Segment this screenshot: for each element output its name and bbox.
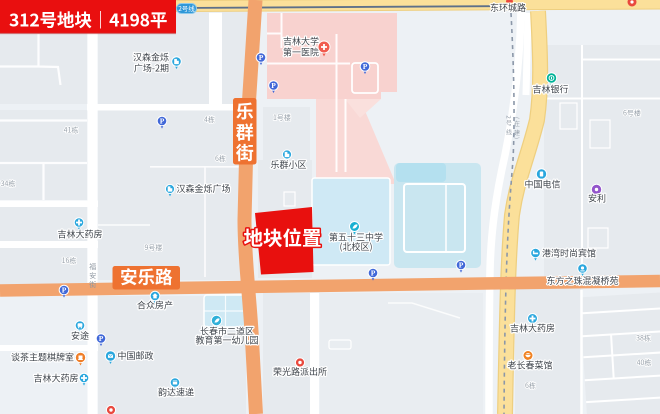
svg-text:地块位置: 地块位置 (243, 222, 321, 251)
svg-text:312号地块｜4198平: 312号地块｜4198平 (9, 8, 167, 33)
svg-text:1号楼: 1号楼 (273, 113, 291, 123)
svg-text:38栋: 38栋 (636, 334, 651, 344)
svg-text:2号线: 2号线 (178, 3, 195, 13)
svg-text:P: P (459, 260, 464, 271)
svg-text:东环城路: 东环城路 (490, 1, 526, 14)
svg-text:6号楼: 6号楼 (623, 109, 641, 119)
svg-text:P: P (363, 61, 368, 72)
svg-text:中国电信: 中国电信 (524, 178, 560, 191)
svg-text:港湾时尚宾馆: 港湾时尚宾馆 (542, 247, 596, 260)
svg-text:教育第一幼儿园: 教育第一幼儿园 (195, 334, 258, 347)
svg-text:东方之珠混凝桥苑: 东方之珠混凝桥苑 (546, 274, 618, 287)
svg-text:安途: 安途 (71, 329, 89, 342)
svg-text:安利: 安利 (588, 192, 606, 205)
svg-text:安乐路: 安乐路 (120, 265, 173, 290)
svg-text:吉林大药房: 吉林大药房 (510, 322, 555, 335)
svg-text:(北校区): (北校区) (339, 240, 372, 253)
svg-text:16栋: 16栋 (62, 256, 77, 266)
svg-text:老长春菜馆: 老长春菜馆 (507, 359, 552, 372)
svg-text:合众房产: 合众房产 (137, 299, 173, 312)
svg-text:6栋: 6栋 (525, 381, 536, 391)
svg-text:乐群小区: 乐群小区 (270, 158, 306, 171)
svg-text:汉森金烁广场: 汉森金烁广场 (177, 182, 231, 195)
svg-text:韵达速递: 韵达速递 (158, 386, 194, 399)
svg-text:P: P (271, 80, 276, 91)
svg-text:街: 街 (89, 280, 96, 290)
svg-text:吉林银行: 吉林银行 (532, 83, 568, 96)
svg-text:P: P (259, 52, 264, 63)
svg-text:荣光路派出所: 荣光路派出所 (273, 365, 327, 378)
svg-text:吉林大药房: 吉林大药房 (33, 372, 78, 385)
svg-text:6栋: 6栋 (215, 154, 226, 164)
svg-text:中国邮政: 中国邮政 (118, 349, 154, 362)
svg-text:谈茶主题棋牌室: 谈茶主题棋牌室 (11, 351, 74, 364)
svg-text:34栋: 34栋 (1, 179, 16, 189)
svg-text:P: P (371, 268, 376, 279)
svg-text:9号楼: 9号楼 (145, 243, 163, 253)
svg-text:40栋: 40栋 (637, 358, 652, 368)
svg-text:广场-2期: 广场-2期 (134, 62, 169, 75)
svg-text:第一医院: 第一医院 (283, 46, 319, 59)
svg-text:P: P (160, 116, 165, 127)
svg-text:41栋: 41栋 (64, 126, 79, 136)
svg-text:P: P (99, 333, 104, 344)
svg-text:吉林大药房: 吉林大药房 (57, 228, 102, 241)
svg-text:4栋: 4栋 (204, 115, 215, 125)
svg-text:(在建): (在建) (513, 117, 522, 139)
svg-text:街: 街 (236, 140, 254, 166)
svg-text:P: P (62, 285, 67, 296)
